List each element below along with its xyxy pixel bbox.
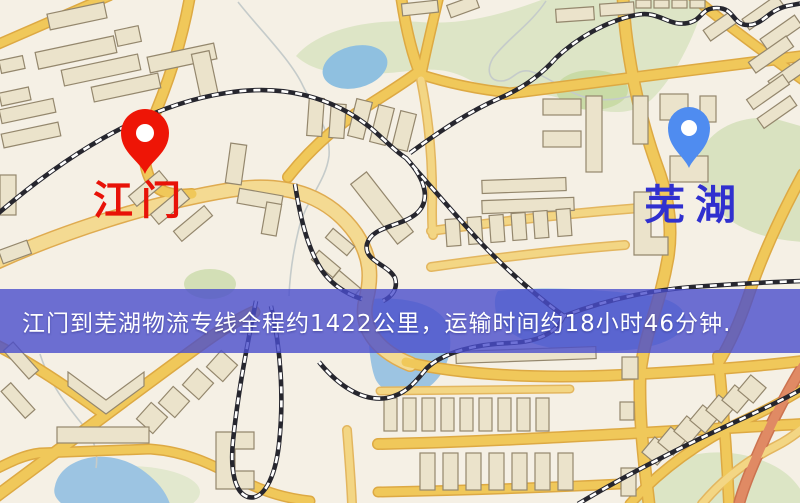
building <box>307 98 325 137</box>
building <box>543 99 581 115</box>
building <box>690 0 705 8</box>
building <box>633 96 648 144</box>
building <box>57 427 149 443</box>
building <box>535 453 550 490</box>
building <box>558 453 573 490</box>
building <box>479 398 492 431</box>
building <box>517 398 530 431</box>
building <box>672 0 687 8</box>
building <box>443 453 458 490</box>
destination-pin-hole <box>681 120 697 136</box>
building <box>654 0 669 8</box>
building <box>636 0 651 8</box>
building <box>556 7 595 23</box>
destination-label: 芜湖 <box>644 181 746 229</box>
building <box>422 398 435 431</box>
route-banner-text: 江门到芜湖物流专线全程约1422公里，运输时间约18小时46分钟. <box>22 304 731 338</box>
route-banner: 江门到芜湖物流专线全程约1422公里，运输时间约18小时46分钟. <box>0 289 800 353</box>
building <box>384 398 397 431</box>
map-svg: 江门 芜湖 <box>0 0 800 503</box>
origin-pin-hole <box>136 124 154 142</box>
building <box>403 398 416 431</box>
building <box>498 398 511 431</box>
building <box>489 215 505 243</box>
building <box>512 453 527 490</box>
building <box>620 402 634 420</box>
building <box>533 211 549 239</box>
building <box>420 453 435 490</box>
building <box>622 357 638 379</box>
building <box>466 453 481 490</box>
building <box>600 2 635 16</box>
building <box>441 398 454 431</box>
building <box>511 213 527 241</box>
building <box>543 131 581 147</box>
building <box>445 219 461 247</box>
building <box>586 96 602 172</box>
building <box>489 453 504 490</box>
building <box>536 398 549 431</box>
building <box>556 209 572 237</box>
building <box>460 398 473 431</box>
origin-label: 江门 <box>93 178 189 224</box>
map-canvas: 江门 芜湖 江门到芜湖物流专线全程约1422公里，运输时间约18小时46分钟. <box>0 0 800 503</box>
building <box>482 178 566 194</box>
